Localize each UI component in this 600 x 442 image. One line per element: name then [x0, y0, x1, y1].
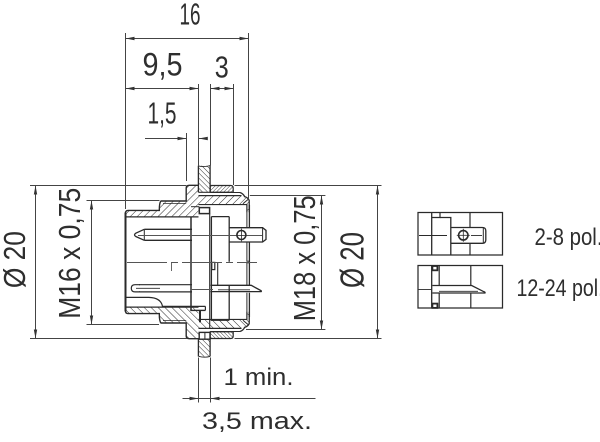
svg-text:M16 x 0,75: M16 x 0,75 [52, 188, 87, 319]
svg-text:1 min.: 1 min. [224, 364, 294, 391]
svg-text:1,5: 1,5 [148, 96, 177, 131]
svg-text:16: 16 [180, 0, 201, 32]
svg-text:3: 3 [215, 50, 229, 85]
svg-text:Ø 20: Ø 20 [0, 231, 32, 288]
svg-text:2-8 pol.: 2-8 pol. [535, 224, 600, 251]
svg-text:12-24 pol.: 12-24 pol. [517, 275, 600, 302]
svg-text:M18 x 0,75: M18 x 0,75 [287, 195, 322, 321]
svg-text:9,5: 9,5 [143, 47, 183, 83]
svg-text:3,5 max.: 3,5 max. [202, 408, 312, 435]
svg-text:Ø 20: Ø 20 [334, 232, 371, 288]
